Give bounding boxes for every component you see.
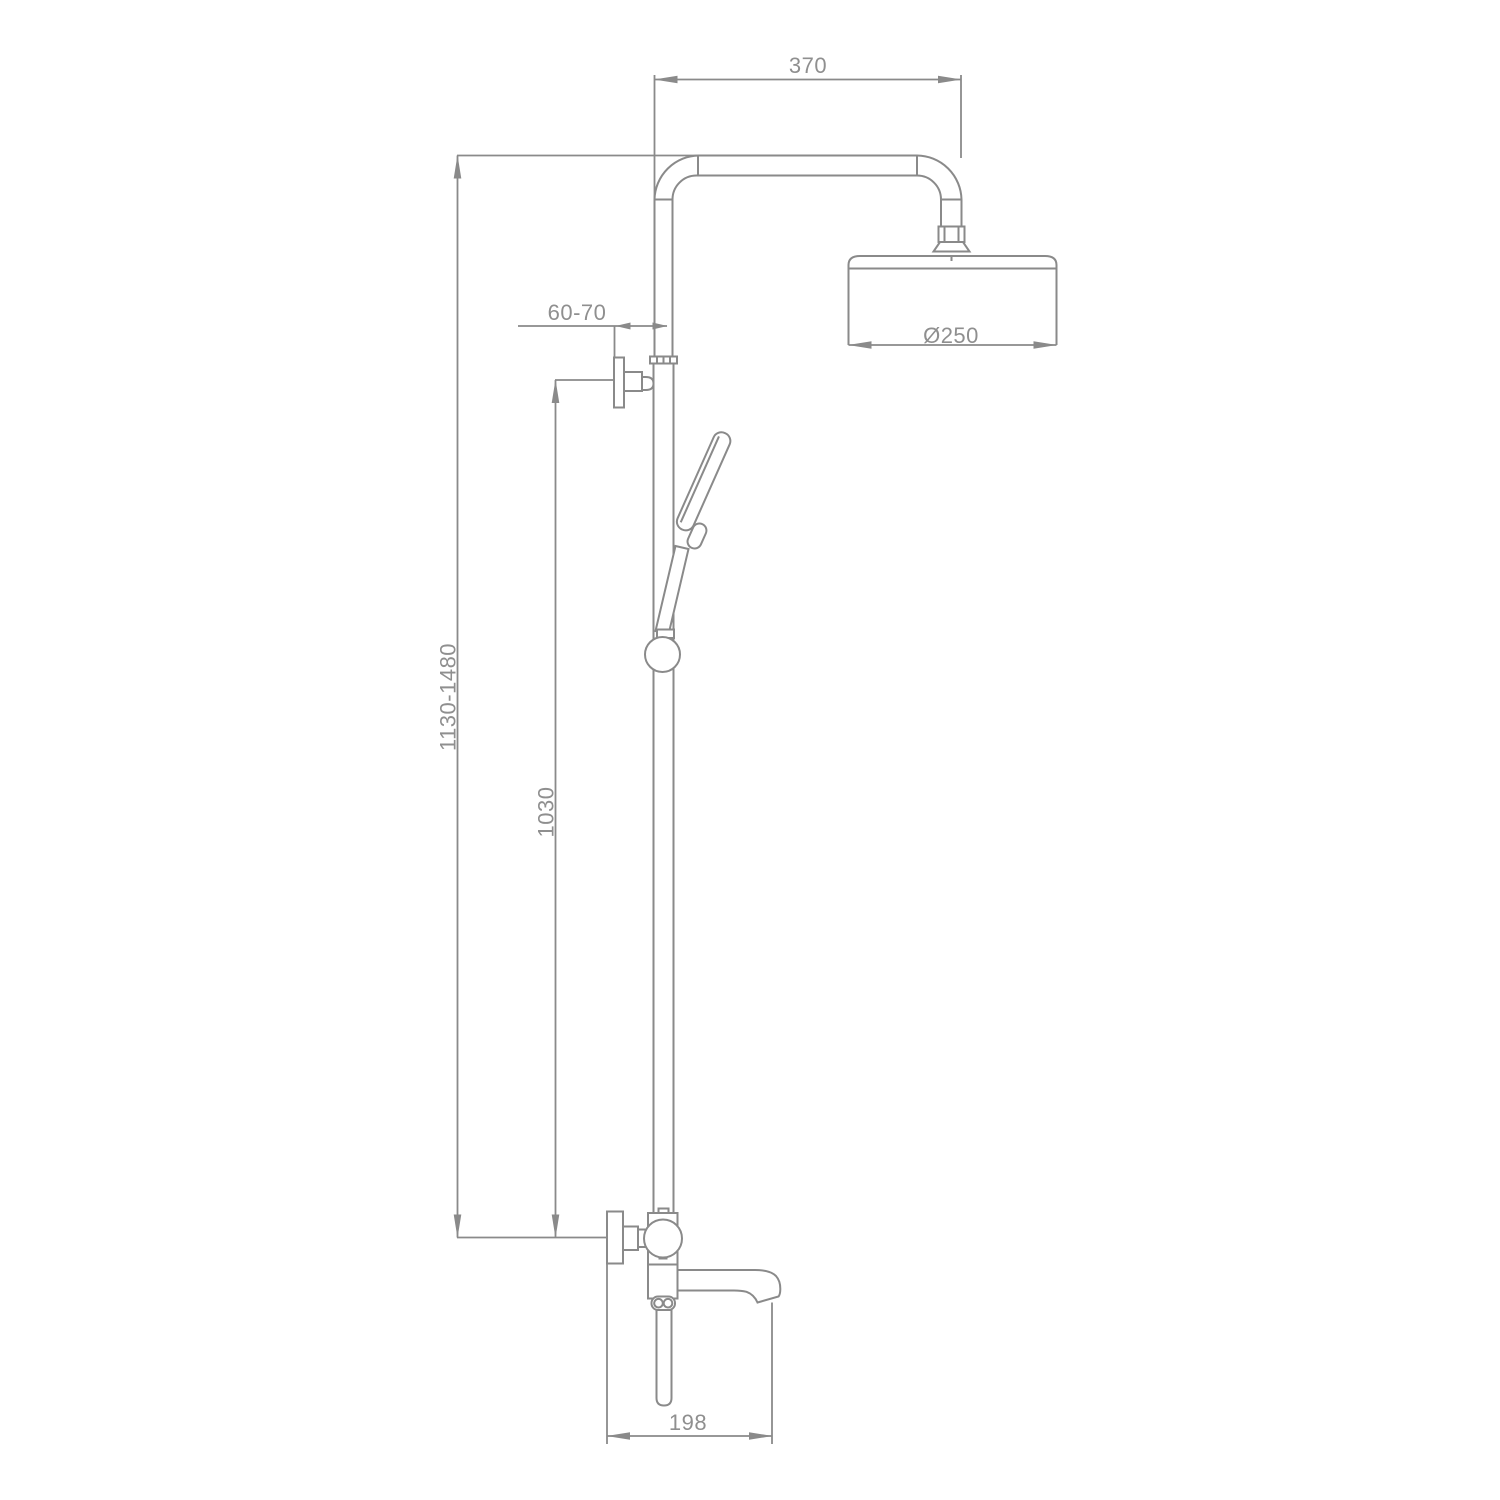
head-connector-nut [934, 227, 970, 252]
dimension-arm-reach: 370 [655, 53, 962, 200]
arm-reach-label: 370 [789, 53, 827, 78]
shower-arm [655, 156, 962, 227]
dimension-rail-height: 1030 [534, 380, 615, 1238]
valve-handle [644, 1220, 682, 1259]
dimension-head-diameter: Ø250 [849, 323, 1057, 348]
upper-wall-bracket [614, 358, 654, 408]
technical-drawing-page: 370 Ø250 60-70 1130-1480 1030 198 [0, 0, 1500, 1500]
hand-shower-slider [645, 630, 680, 673]
hose-nut [652, 1297, 676, 1311]
mixer-valve [607, 1209, 682, 1299]
column-height-label: 1130-1480 [436, 643, 461, 751]
wall-offset-label: 60-70 [548, 300, 607, 325]
hand-shower [645, 430, 733, 672]
riser-pipe [650, 200, 677, 1214]
head-diameter-label: Ø250 [923, 323, 979, 348]
tub-spout [678, 1270, 781, 1303]
shower-system-technical-drawing: 370 Ø250 60-70 1130-1480 1030 198 [0, 0, 1500, 1500]
rail-height-label: 1030 [534, 787, 559, 838]
temperature-lever [657, 1310, 672, 1406]
spout-reach-label: 198 [669, 1410, 707, 1435]
dimension-wall-offset: 60-70 [518, 300, 667, 357]
